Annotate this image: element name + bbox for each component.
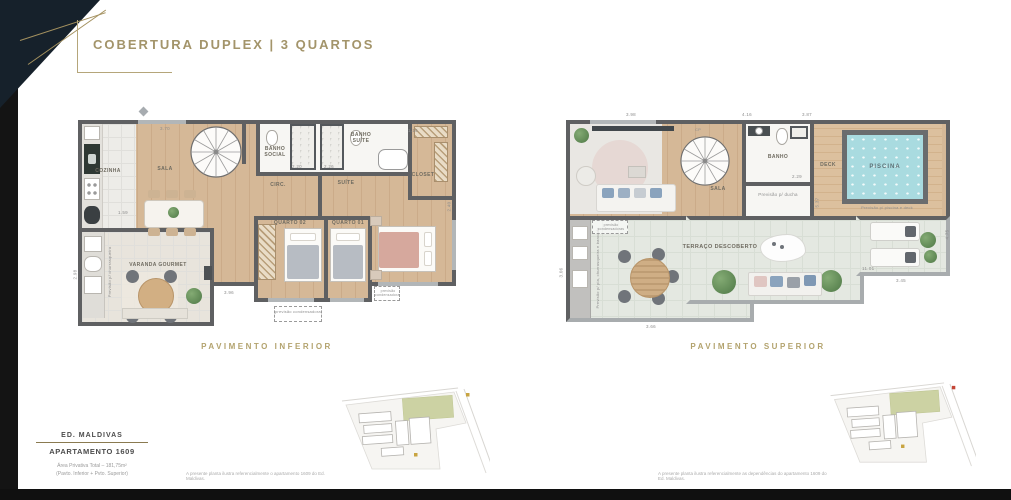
dining-chair <box>184 228 196 236</box>
varanda-plant <box>186 288 202 304</box>
apartment-number: APARTAMENTO 1609 <box>28 447 156 456</box>
area-detail: (Pavto. Inferior + Pvto. Superior) <box>28 471 156 477</box>
area-total: Área Privativa Total – 181,75m² <box>28 463 156 469</box>
cooktop-burners <box>86 181 98 197</box>
wall <box>256 172 412 176</box>
dimension: 1.16 <box>408 128 418 133</box>
terrace-bush <box>712 270 736 294</box>
fridge <box>84 126 100 140</box>
dining-chair <box>148 190 160 198</box>
note-condensadoras: previsão condensadoras <box>375 289 400 297</box>
nightstand <box>370 270 382 280</box>
gold-divider <box>36 442 148 443</box>
pool: PISCINA <box>842 130 928 204</box>
varanda-cooler <box>84 256 102 272</box>
wall <box>742 124 746 216</box>
dining-chair <box>166 190 178 198</box>
terrace-step-edge <box>750 304 754 322</box>
terrace-cabinet <box>572 246 588 260</box>
bathtub <box>378 149 408 170</box>
terrace-bush <box>920 232 936 248</box>
dimension: 4.16 <box>742 112 752 117</box>
armchair <box>576 166 596 186</box>
room-label-terraco: TERRAÇO DESCOBERTO <box>676 244 764 251</box>
dimension: 2.26 <box>324 164 334 169</box>
lounger-cushion <box>905 226 916 237</box>
wall <box>324 220 328 298</box>
window <box>590 120 656 124</box>
window <box>138 120 186 124</box>
dimension: 5.37 <box>814 198 819 208</box>
sofa-cushion <box>650 188 662 198</box>
window <box>330 298 364 302</box>
suite-bed <box>378 226 436 272</box>
suite-bed-blanket <box>379 232 419 268</box>
sun-lounger <box>870 222 920 241</box>
pouf-dot <box>772 242 776 246</box>
room-label-cozinha: COZINHA <box>86 168 130 174</box>
dimension: 2.29 <box>792 174 802 179</box>
varanda-bench <box>122 308 188 319</box>
dining-chair <box>184 190 196 198</box>
suite-bed-pillow <box>424 232 432 247</box>
label-cp: CP <box>692 128 704 133</box>
sala-plant <box>574 128 589 143</box>
grill-unit <box>204 266 212 280</box>
bottom-edge-strip <box>0 489 1011 500</box>
dimension: 2.98 <box>72 270 77 280</box>
dimension: 1.59 <box>118 210 128 215</box>
site-plan-right <box>828 380 976 470</box>
sofa-cushion <box>787 277 800 288</box>
bed-pillow <box>290 233 316 241</box>
condenser-provision-box: previsão condensadoras <box>592 220 628 234</box>
oven <box>84 206 100 224</box>
sofa-cushion <box>804 275 816 286</box>
varanda-chair <box>126 270 139 283</box>
wardrobe <box>258 224 276 280</box>
room-label-banho-social: BANHO SOCIAL <box>260 146 290 159</box>
toilet <box>776 128 788 145</box>
room-label-piscina: PISCINA <box>869 164 900 170</box>
quarto01-bed <box>330 228 366 282</box>
room-label-deck: DECK <box>814 162 842 168</box>
terrace-chair <box>618 290 631 303</box>
brochure-page: COBERTURA DUPLEX | 3 QUARTOS COZINHA SAL… <box>0 0 1011 500</box>
window <box>268 298 314 302</box>
terrace-chair <box>618 250 631 263</box>
terrace-bush <box>820 270 842 292</box>
page-title: COBERTURA DUPLEX | 3 QUARTOS <box>93 37 374 52</box>
nightstand <box>370 216 382 226</box>
room-label-banho-suite: BANHO SUÍTE <box>346 132 376 145</box>
dining-chair <box>166 228 178 236</box>
note-piscina-deck: Previsão p/ piscina e deck <box>852 206 922 211</box>
dimension: 2.20 <box>292 164 302 169</box>
sun-lounger <box>870 248 920 267</box>
dimension: 3.66 <box>646 324 656 329</box>
coffee-table <box>628 166 646 178</box>
room-label-circ: CIRC. <box>258 182 298 188</box>
sofa-cushion <box>754 276 767 287</box>
kitchen-sink <box>88 154 96 164</box>
dining-chair <box>148 228 160 236</box>
stair-wall <box>242 120 246 164</box>
table-plant <box>168 207 179 218</box>
plan-caption-superior: PAVIMENTO SUPERIOR <box>566 342 950 351</box>
window <box>452 220 456 270</box>
dimension: 11.01 <box>862 266 874 271</box>
dimension: 3.45 <box>896 278 906 283</box>
floorplan-superior: SALA CP B <box>566 120 950 332</box>
bed-blanket <box>287 245 319 279</box>
sofa-cushion <box>770 276 783 287</box>
dimension: 3.87 <box>802 112 812 117</box>
sofa-cushion <box>634 188 646 198</box>
note-bancada: Previsão p/ pia, churrasqueira e bancada <box>596 224 601 312</box>
room-label-suite: SUÍTE <box>326 180 366 186</box>
suite-bed-pillow <box>424 251 432 266</box>
room-label-sala-sup: SALA <box>698 186 738 192</box>
note-condensadoras: previsão condensadoras <box>593 223 628 231</box>
room-label-banho-sup: BANHO <box>758 154 798 160</box>
note-condensadoras: previsão condensadoras <box>275 310 322 315</box>
window <box>378 282 438 286</box>
terrace-sink <box>572 226 588 240</box>
room-label-quarto02: QUARTO 02 <box>258 220 322 226</box>
bed-blanket <box>333 245 363 279</box>
lounger-cushion <box>905 252 916 263</box>
note-churrasqueira: Previsão p/ churrasqueira <box>108 234 113 310</box>
shower-stall <box>790 126 808 139</box>
room-label-sala: SALA <box>140 166 190 172</box>
bed-pillow <box>336 233 360 241</box>
tv-panel <box>592 126 674 131</box>
wall <box>746 182 810 186</box>
ducha-floor <box>746 186 810 216</box>
floorplan-inferior: COZINHA SALA <box>78 120 456 332</box>
condenser-provision-box: previsão condensadoras <box>374 286 400 301</box>
room-label-quarto01: QUARTO 01 <box>328 220 368 226</box>
varanda-cabinet <box>84 276 102 294</box>
wall <box>408 196 456 200</box>
disclaimer-right: A presente planta ilustra referencialmen… <box>658 471 833 481</box>
note-ducha: Previsão p/ ducha <box>750 192 806 197</box>
spiral-staircase <box>190 126 242 178</box>
toilet <box>266 130 278 146</box>
room-label-varanda: VARANDA GOURMET <box>116 262 200 268</box>
north-icon <box>139 107 149 117</box>
closet-shelves <box>414 126 448 138</box>
disclaimer-left: A presente planta ilustra referencialmen… <box>186 471 336 481</box>
dimension: 3.06 <box>558 268 563 278</box>
sofa-cushion <box>618 188 630 198</box>
building-name: ED. MALDIVAS <box>28 432 156 439</box>
dimension: 4.75 <box>944 230 949 240</box>
pouf-dot <box>780 245 784 249</box>
condenser-provision-box: previsão condensadoras <box>274 306 322 322</box>
round-sink <box>755 127 763 135</box>
dimension: 2.40 <box>446 202 451 212</box>
site-plan-left <box>340 385 490 477</box>
dimension: 3.70 <box>160 126 170 131</box>
terrace-grill <box>572 270 588 288</box>
terrace-bush <box>924 250 937 263</box>
dimension: 3.98 <box>626 112 636 117</box>
dimension: 3.96 <box>224 290 234 295</box>
room-label-closet: CLOSET <box>408 172 438 178</box>
terrace-table <box>630 258 670 298</box>
plan-caption-inferior: PAVIMENTO INFERIOR <box>78 342 456 351</box>
varanda-sink <box>84 236 102 252</box>
spiral-staircase <box>680 136 730 186</box>
wall <box>318 176 322 216</box>
sofa-cushion <box>602 188 614 198</box>
unit-info-block: ED. MALDIVAS APARTAMENTO 1609 Área Priva… <box>28 432 156 477</box>
quarto02-bed <box>284 228 322 282</box>
